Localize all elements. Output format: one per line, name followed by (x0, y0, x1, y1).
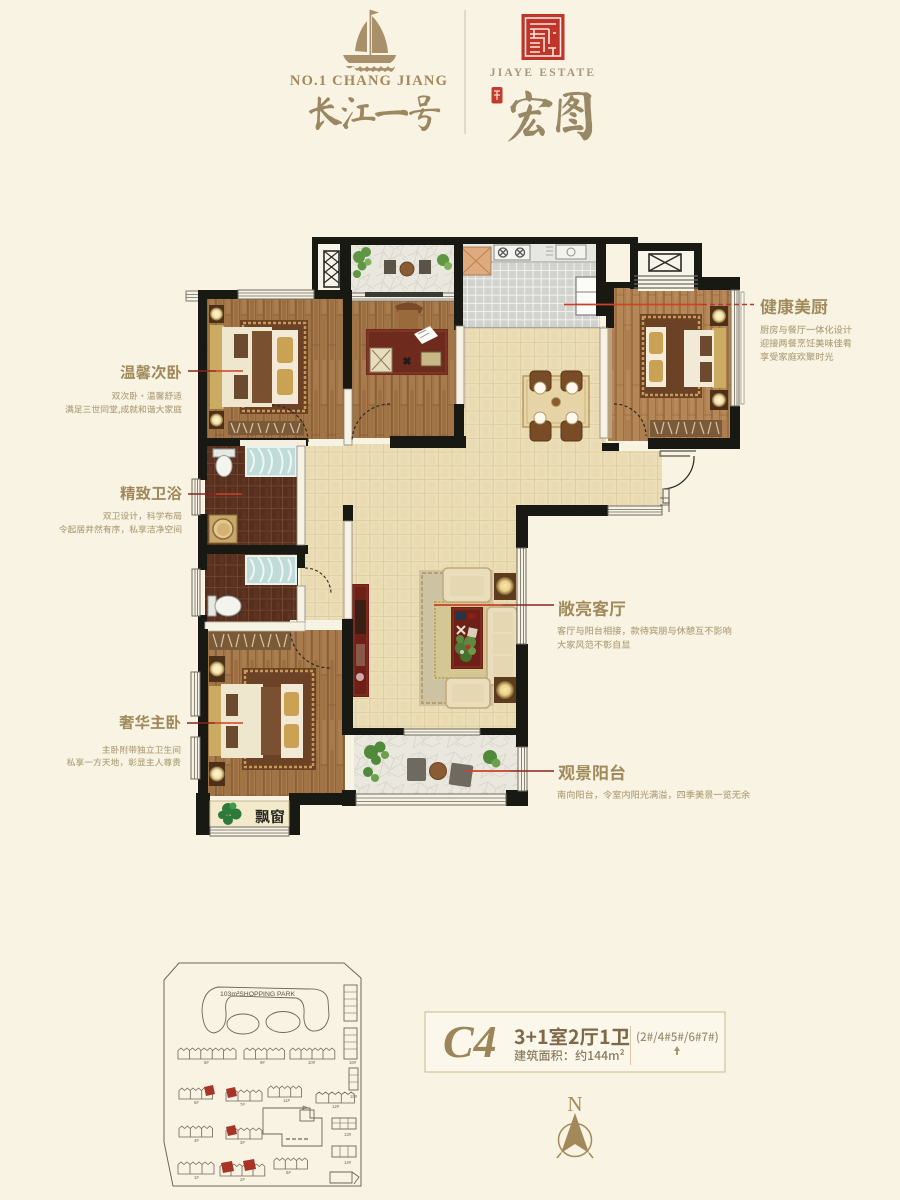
svg-text:JIAYE ESTATE: JIAYE ESTATE (490, 67, 596, 79)
svg-text:15#: 15# (350, 1094, 358, 1099)
svg-text:NO.1 CHANG JIANG: NO.1 CHANG JIANG (290, 73, 448, 89)
svg-text:16#: 16# (349, 1060, 357, 1065)
svg-text:6#: 6# (194, 1100, 199, 1105)
svg-text:N: N (567, 1092, 582, 1116)
svg-text:2#: 2# (240, 1177, 245, 1182)
svg-text:103m²SHOPPING PARK: 103m²SHOPPING PARK (220, 991, 296, 998)
svg-text:5#: 5# (286, 1170, 291, 1175)
svg-text:C4: C4 (443, 1016, 497, 1067)
svg-text:9#: 9# (260, 1060, 265, 1065)
svg-text:8#: 8# (204, 1060, 209, 1065)
svg-text:10#: 10# (308, 1060, 316, 1065)
svg-text:1#: 1# (194, 1175, 199, 1180)
svg-text:12#: 12# (332, 1104, 340, 1109)
svg-text:14#: 14# (344, 1160, 352, 1165)
svg-text:11#: 11# (283, 1098, 290, 1103)
svg-text:7#: 7# (240, 1102, 245, 1107)
svg-text:4#: 4# (194, 1138, 199, 1143)
svg-text:13#: 13# (344, 1132, 352, 1137)
svg-text:3#: 3# (240, 1140, 245, 1145)
